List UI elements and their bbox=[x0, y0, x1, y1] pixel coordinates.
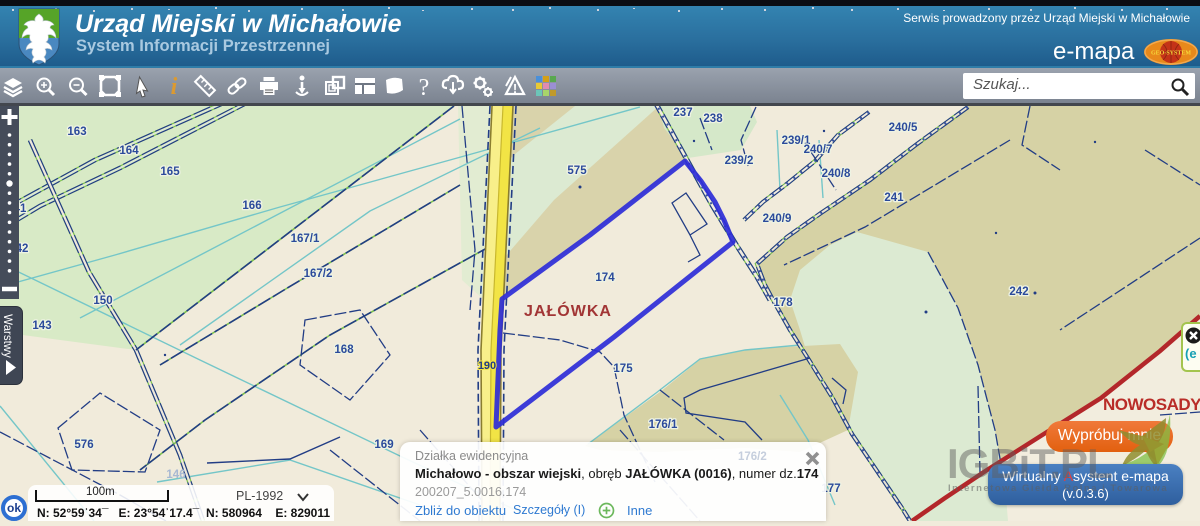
svg-text:i: i bbox=[171, 74, 178, 100]
svg-text:240/8: 240/8 bbox=[822, 168, 851, 180]
svg-text:169: 169 bbox=[374, 439, 393, 451]
svg-text:190: 190 bbox=[478, 360, 496, 372]
svg-text:240/5: 240/5 bbox=[889, 122, 918, 134]
svg-text:239/2: 239/2 bbox=[725, 155, 754, 167]
svg-text:166: 166 bbox=[242, 200, 261, 212]
svg-text:237: 237 bbox=[673, 107, 692, 119]
svg-text:238: 238 bbox=[703, 113, 723, 125]
svg-text:146: 146 bbox=[166, 469, 185, 481]
svg-text:165: 165 bbox=[160, 166, 180, 178]
svg-text:GEO-SYSTEM: GEO-SYSTEM bbox=[1151, 51, 1191, 57]
svg-text:163: 163 bbox=[67, 126, 86, 138]
svg-text:241: 241 bbox=[884, 192, 904, 204]
svg-text:242: 242 bbox=[1009, 286, 1028, 298]
svg-text:175: 175 bbox=[613, 363, 633, 375]
svg-text:143: 143 bbox=[32, 320, 51, 332]
svg-text:164: 164 bbox=[119, 145, 139, 157]
svg-text:240/7: 240/7 bbox=[804, 144, 833, 156]
svg-text:174: 174 bbox=[595, 272, 615, 284]
svg-text:167/1: 167/1 bbox=[291, 233, 320, 245]
svg-text:575: 575 bbox=[567, 165, 587, 177]
svg-text:176/1: 176/1 bbox=[649, 419, 678, 431]
svg-text:?: ? bbox=[419, 75, 430, 101]
svg-text:167/2: 167/2 bbox=[304, 268, 333, 280]
svg-text:168: 168 bbox=[334, 344, 354, 356]
svg-text:JAŁÓWKA: JAŁÓWKA bbox=[524, 301, 612, 320]
svg-text:!: ! bbox=[513, 81, 517, 96]
svg-text:150: 150 bbox=[93, 295, 112, 307]
svg-text:178: 178 bbox=[773, 297, 793, 309]
svg-text:576: 576 bbox=[74, 439, 93, 451]
svg-text:240/9: 240/9 bbox=[763, 213, 792, 225]
